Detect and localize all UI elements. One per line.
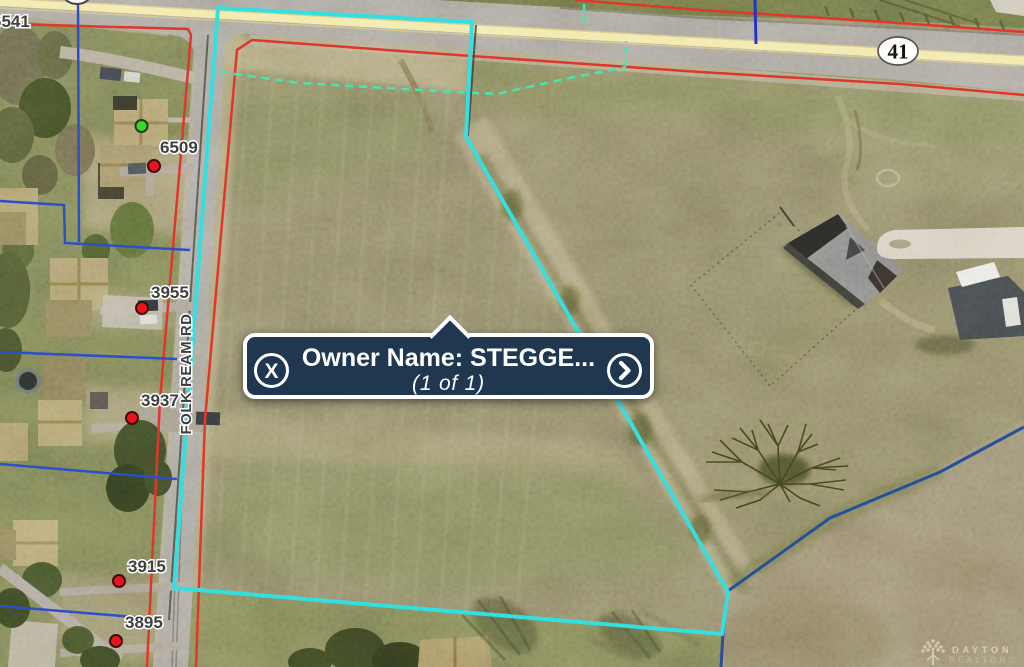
svg-text:3955: 3955	[151, 283, 189, 302]
svg-text:41: 41	[888, 40, 909, 64]
svg-text:3915: 3915	[128, 557, 166, 576]
svg-text:3895: 3895	[125, 613, 163, 632]
svg-text:3937: 3937	[141, 391, 179, 410]
svg-text:FOLK REAM RD: FOLK REAM RD	[178, 314, 195, 435]
svg-text:REALTORS: REALTORS	[949, 655, 1017, 665]
svg-text:6541: 6541	[0, 12, 30, 31]
svg-text:6509: 6509	[160, 138, 198, 157]
svg-text:X: X	[264, 360, 278, 383]
